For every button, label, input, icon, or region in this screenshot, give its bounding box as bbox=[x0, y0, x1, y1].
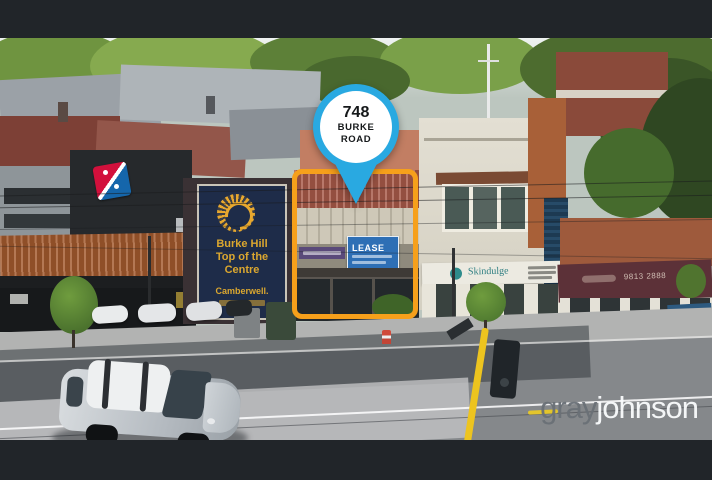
dominos-building-wall bbox=[70, 150, 192, 246]
traffic-light-icon bbox=[490, 339, 521, 399]
skindulge-info-blur bbox=[528, 276, 552, 279]
car-roof bbox=[86, 360, 171, 414]
skindulge-name: Skindulge bbox=[468, 266, 509, 278]
parked-scooter bbox=[91, 305, 128, 324]
deco-window-hood bbox=[436, 171, 530, 185]
pin-road-line1: BURKE bbox=[320, 123, 392, 134]
shop-window bbox=[4, 214, 70, 228]
watermark-gray: gray bbox=[540, 390, 596, 425]
street-tree-trunk bbox=[72, 330, 75, 348]
chimney bbox=[206, 96, 215, 114]
traffic-cone bbox=[382, 330, 391, 344]
chimney bbox=[58, 102, 68, 122]
skindulge-info-blur bbox=[528, 266, 556, 269]
street-tree bbox=[676, 264, 706, 298]
power-pole bbox=[148, 236, 151, 314]
rusty-roof bbox=[0, 232, 196, 281]
parked-scooter bbox=[185, 300, 222, 321]
traffic-light-lens bbox=[500, 378, 509, 387]
awning-phone-text: 9813 2888 bbox=[624, 271, 667, 281]
tree-canopy bbox=[584, 128, 674, 218]
dominos-logo-dot bbox=[103, 170, 108, 175]
burke-hill-line1: Burke Hill bbox=[199, 238, 285, 250]
aerial-photo: Burke Hill Top of the Centre Camberwell.… bbox=[0, 38, 712, 440]
parked-scooter bbox=[138, 303, 177, 323]
dominos-logo-icon bbox=[92, 161, 131, 200]
pin-number: 748 bbox=[320, 104, 392, 122]
letterbox-bottom bbox=[0, 440, 712, 480]
car-rear-window bbox=[66, 376, 84, 407]
building-trim bbox=[556, 90, 668, 98]
deco-window bbox=[498, 184, 528, 232]
street-tree bbox=[466, 282, 506, 322]
deco-window bbox=[442, 184, 472, 232]
location-pin-icon: 748 BURKE ROAD bbox=[310, 82, 402, 206]
burke-hill-line3: Centre bbox=[199, 264, 285, 276]
parked-motorbike bbox=[225, 299, 252, 317]
street-tree bbox=[50, 276, 98, 334]
power-pole bbox=[452, 248, 455, 318]
skindulge-info-blur bbox=[528, 271, 556, 274]
flag-pole bbox=[487, 44, 490, 124]
burke-hill-line2: Top of the bbox=[199, 251, 285, 263]
pin-road-line2: ROAD bbox=[320, 135, 392, 146]
burke-hill-line4: Camberwell. bbox=[199, 286, 285, 296]
awning-script-blur bbox=[582, 275, 616, 283]
flag-pole-crossbar bbox=[478, 60, 499, 62]
agency-watermark: grayjohnson bbox=[540, 390, 698, 426]
silver-suv bbox=[55, 352, 246, 440]
skindulge-fascia: Skindulge bbox=[422, 261, 562, 285]
deco-parapet-line bbox=[424, 138, 542, 141]
dominos-logo-dot bbox=[114, 184, 119, 189]
car-wheel bbox=[85, 424, 118, 440]
letterbox-top bbox=[0, 0, 712, 38]
shop-sign-small bbox=[10, 294, 28, 304]
deco-window bbox=[470, 184, 500, 232]
real-estate-listing-photo: Burke Hill Top of the Centre Camberwell.… bbox=[0, 0, 712, 480]
watermark-johnson: johnson bbox=[596, 390, 698, 425]
